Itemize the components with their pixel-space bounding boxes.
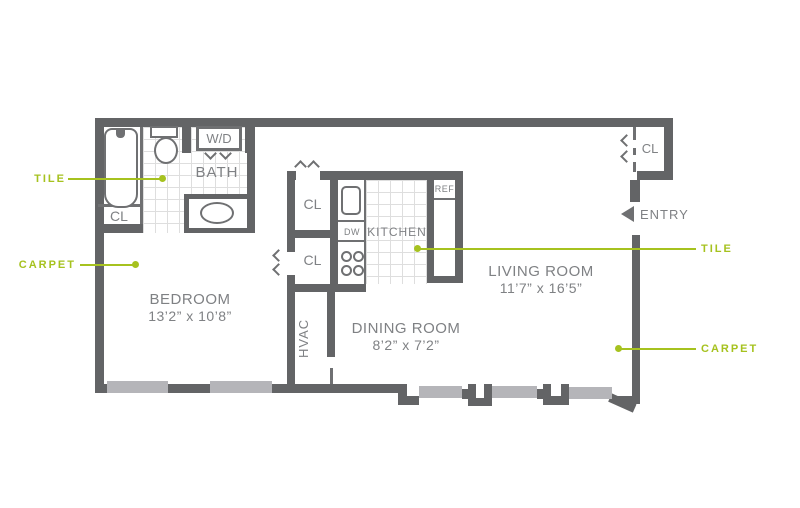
window [107,381,168,393]
closet-door-chevron-icon [272,263,285,276]
wall-jog [407,396,419,405]
carpet-leader-line [619,348,696,350]
dishwasher-label: DW [338,227,366,237]
window [419,386,462,398]
window [210,381,272,393]
counter-divider [338,220,366,222]
floor-plan: W/D DW REF BEDROOM 13’2” x 10’8” DINING … [0,0,800,508]
wall-jog [398,384,407,405]
vanity-sink [200,202,234,224]
stove-burner [353,251,364,262]
closet-label: CL [295,252,330,268]
tile-leader-dot [159,175,166,182]
hvac-door-line [330,368,333,384]
wall-left [95,118,104,393]
closet-label: CL [295,196,330,212]
refrigerator-label: REF [434,184,455,194]
dining-room-label: DINING ROOM 8’2” x 7’2” [326,320,486,353]
closet-door-chevron-icon [294,160,307,173]
stove-burner [353,265,364,276]
wd-niche-left-wall [182,127,191,153]
wall-jog [468,384,476,406]
bedroom-name: BEDROOM [110,291,270,308]
stove-burner [341,251,352,262]
hvac-label: HVAC [296,310,322,366]
bathtub [104,128,138,208]
bedroom-right-wall [287,292,295,384]
tile-leader-line [418,248,696,250]
wall-jog [561,384,569,405]
kitchen-sink [341,186,361,215]
bedroom-dims: 13’2” x 10’8” [110,308,270,324]
wall-jog [484,384,492,406]
ref-bottom-wall [427,276,463,283]
closet-door-chevron-icon [272,249,285,262]
kitchen-left-wall [330,171,338,292]
stove-burner [341,265,352,276]
entry-closet-wall [633,162,636,172]
wd-niche-right-wall [245,127,254,153]
washer-dryer-label: W/D [196,131,242,146]
wall-jog [543,384,551,405]
kitchen-top-wall [320,171,462,180]
bedroom-top-wall [95,224,143,233]
closet-divider-wall [287,230,330,238]
wall-top [95,118,673,127]
carpet-leader-dot [132,261,139,268]
counter-divider [338,240,366,242]
closet-door-chevron-icon [307,160,320,173]
living-room-label: LIVING ROOM 11’7” x 16’5” [461,263,621,296]
bedroom-label: BEDROOM 13’2” x 10’8” [110,291,270,324]
ref-divider [434,198,455,200]
carpet-annotation-right: CARPET [701,343,758,355]
window [569,387,612,399]
closet-label: CL [98,208,140,224]
window [492,386,537,398]
tile-annotation-left: TILE [22,173,66,185]
tile-annotation-right: TILE [701,243,733,255]
closet-door-chevron-icon [620,134,633,147]
tub-divider-wall [140,127,143,224]
living-dims: 11’7” x 16’5” [461,280,621,296]
dining-name: DINING ROOM [326,320,486,337]
tile-leader-line [68,178,162,180]
entry-label: ENTRY [640,207,700,222]
wall-right-living [632,235,640,404]
wall-jog [616,396,636,405]
entry-closet-wall [633,127,636,140]
living-name: LIVING ROOM [461,263,621,280]
bathtub-faucet [116,128,125,138]
entry-door-stub [630,180,640,202]
dining-dims: 8’2” x 7’2” [326,337,486,353]
closet-left-wall-upper [287,171,295,252]
entry-closet-bottom-wall [637,171,673,180]
carpet-annotation-left: CARPET [8,259,76,271]
closet-door-chevron-icon [620,150,633,163]
toilet-bowl [154,137,178,164]
entry-arrow-icon [621,206,634,222]
bath-label: BATH [177,164,257,181]
closet-label: CL [636,141,664,156]
kitchen-label: KITCHEN [363,225,431,239]
carpet-leader-line [80,264,134,266]
